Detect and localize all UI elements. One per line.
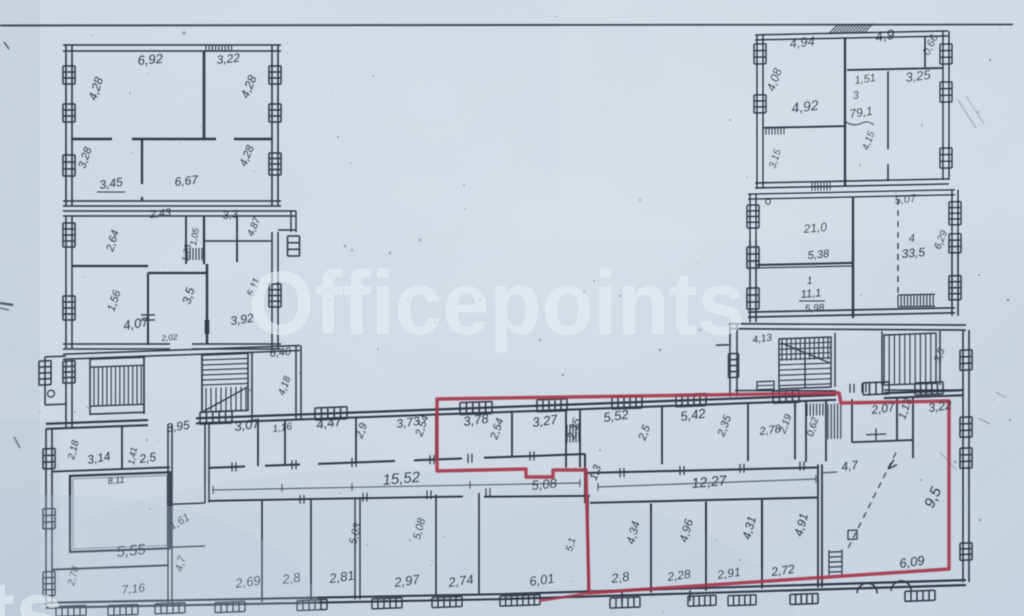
svg-text:6,92: 6,92 xyxy=(137,51,164,68)
svg-text:21,0: 21,0 xyxy=(802,220,828,236)
svg-text:2,5: 2,5 xyxy=(137,450,157,466)
svg-text:4,7: 4,7 xyxy=(840,458,860,474)
svg-text:11,1: 11,1 xyxy=(800,287,822,301)
svg-text:Officepoints: Officepoints xyxy=(248,254,745,354)
svg-text:5,08: 5,08 xyxy=(531,475,558,493)
svg-text:4,9: 4,9 xyxy=(874,26,896,45)
svg-text:3,25: 3,25 xyxy=(905,67,933,85)
svg-text:ts: ts xyxy=(0,562,64,616)
svg-text:4,94: 4,94 xyxy=(789,33,816,51)
svg-text:5,38: 5,38 xyxy=(807,248,830,262)
svg-text:8,11: 8,11 xyxy=(107,475,125,486)
svg-text:3,22: 3,22 xyxy=(216,51,241,67)
svg-text:4: 4 xyxy=(908,233,915,245)
svg-text:15,52: 15,52 xyxy=(382,469,422,489)
svg-text:33,5: 33,5 xyxy=(901,245,926,261)
svg-text:4,92: 4,92 xyxy=(790,97,819,116)
svg-text:5,07: 5,07 xyxy=(894,193,917,207)
svg-text:1: 1 xyxy=(806,276,812,287)
svg-text:6,67: 6,67 xyxy=(174,172,200,189)
svg-text:3,3: 3,3 xyxy=(222,208,239,222)
svg-text:5,98: 5,98 xyxy=(804,303,825,315)
svg-text:2,43: 2,43 xyxy=(148,207,172,221)
svg-text:2,02: 2,02 xyxy=(160,333,178,343)
svg-text:12,27: 12,27 xyxy=(691,472,729,491)
svg-text:2,8: 2,8 xyxy=(609,568,631,586)
